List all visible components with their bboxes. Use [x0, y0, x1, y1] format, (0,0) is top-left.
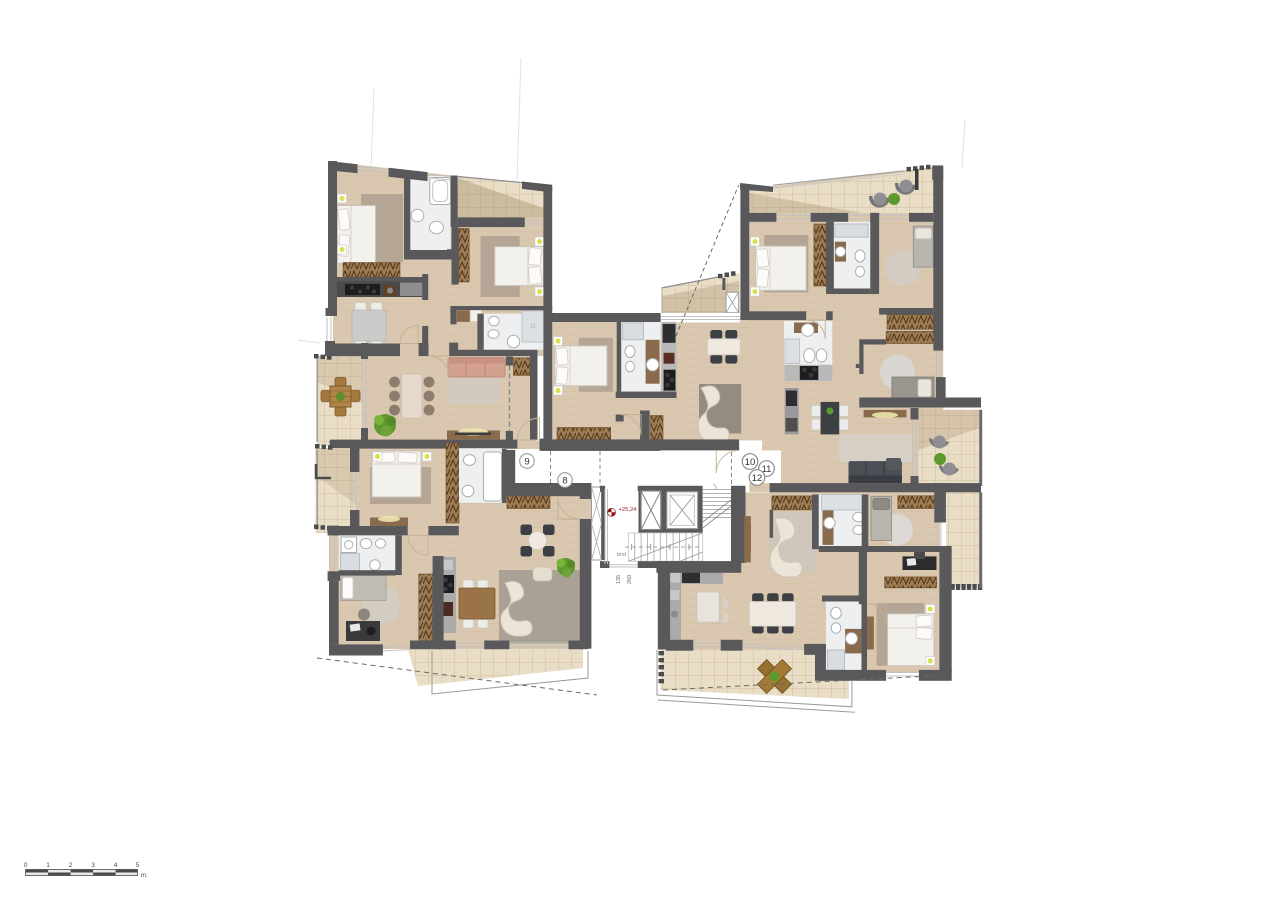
svg-text:5: 5 — [136, 862, 140, 869]
svg-text:10: 10 — [745, 457, 756, 468]
svg-text:0: 0 — [24, 862, 28, 869]
svg-text:3: 3 — [91, 862, 95, 869]
svg-text:12: 12 — [752, 473, 763, 484]
svg-text:bnd: bnd — [617, 552, 626, 558]
svg-text:m.: m. — [141, 873, 148, 879]
svg-text:1: 1 — [46, 862, 50, 869]
svg-text:8: 8 — [562, 475, 567, 486]
svg-text:4: 4 — [114, 862, 118, 869]
svg-text:2: 2 — [69, 862, 73, 869]
svg-text:9: 9 — [524, 456, 529, 467]
svg-text:260: 260 — [627, 575, 633, 584]
svg-text:+25,24: +25,24 — [619, 507, 638, 513]
svg-text:135: 135 — [616, 575, 622, 584]
